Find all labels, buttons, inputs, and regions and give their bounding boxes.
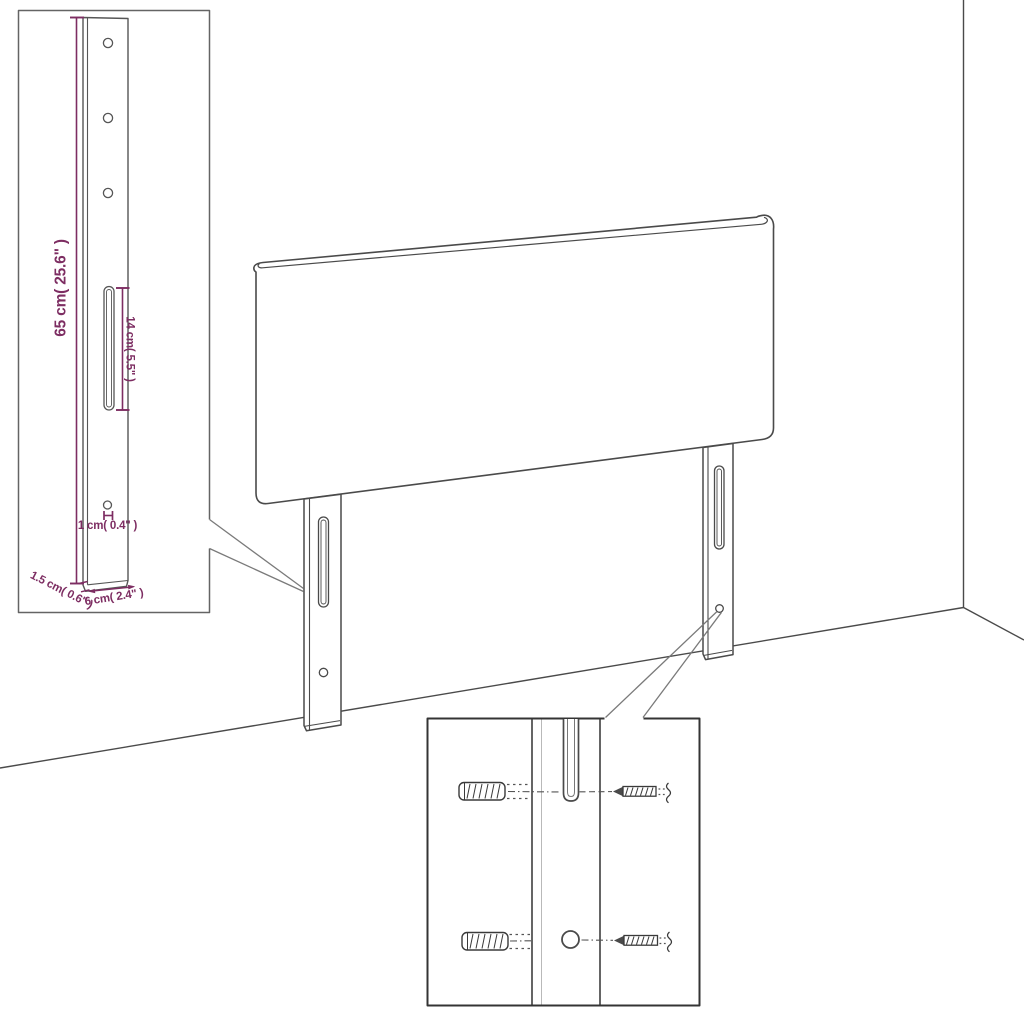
bracket-hole-3 [103,188,112,197]
leg-inset-leader-top [210,520,304,589]
bracket-slot [104,287,114,411]
headboard-panel [254,215,774,503]
callout-leader-lines [210,520,722,718]
floor-line-right [964,608,1024,641]
strip-slot [564,719,579,801]
leg-inset-leader-bottom [210,549,304,592]
mounting-detail-inset [428,719,700,1006]
left-leg-hole [319,668,327,676]
right-leg [703,444,733,660]
bracket-hole-2 [103,113,112,122]
bracket-small-hole [104,501,112,509]
bracket-hole-1 [103,38,112,47]
assembly-diagram: 65 cm( 25.6" ) 14 cm( 5.5" ) 1 cm( 0.4" … [0,0,1024,1024]
right-leg-hole [716,605,724,613]
leg-dimension-inset: 65 cm( 25.6" ) 14 cm( 5.5" ) 1 cm( 0.4" … [19,11,210,613]
left-leg [304,494,341,731]
dim-hole-diameter-label: 1 cm( 0.4" ) [78,520,138,532]
leg-bracket-detail [83,18,128,592]
right-leg-slot [715,466,725,549]
dim-leg-height-label: 65 cm( 25.6" ) [53,239,70,337]
dim-slot-length-label: 14 cm( 5.5" ) [124,316,136,382]
mount-inset-leader-right [643,612,722,717]
diagram-canvas: 65 cm( 25.6" ) 14 cm( 5.5" ) 1 cm( 0.4" … [0,0,1024,1024]
panel-outline [254,215,774,503]
left-leg-slot [319,517,329,607]
strip-hole [562,931,579,948]
